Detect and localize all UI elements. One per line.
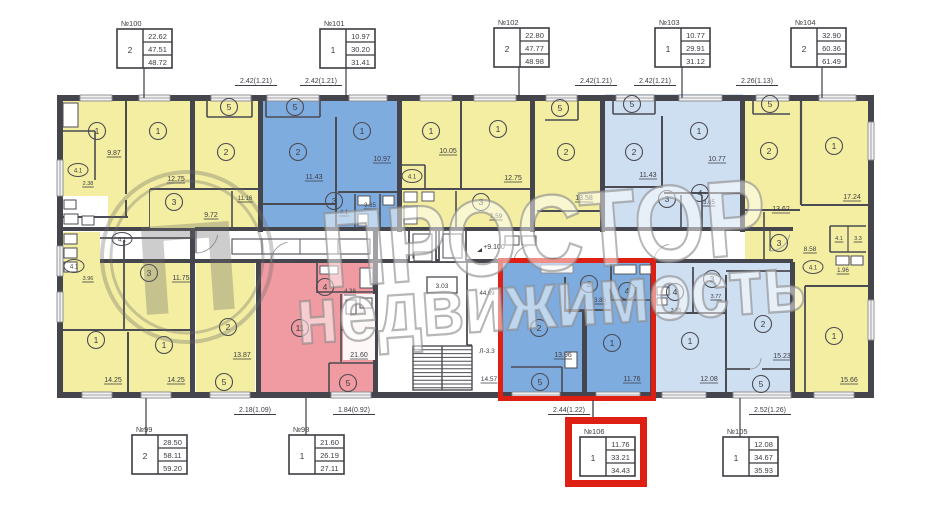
svg-text:1: 1 — [666, 44, 671, 54]
svg-text:№103: №103 — [659, 18, 680, 27]
svg-text:1: 1 — [331, 45, 336, 55]
svg-text:2.42(1.21): 2.42(1.21) — [240, 78, 272, 85]
svg-text:№102: №102 — [498, 18, 519, 27]
svg-text:1: 1 — [591, 453, 596, 463]
svg-text:12.08: 12.08 — [754, 440, 773, 449]
svg-text:59.20: 59.20 — [163, 464, 182, 473]
svg-text:2: 2 — [802, 44, 807, 54]
svg-text:21.60: 21.60 — [320, 438, 339, 447]
svg-text:15.66: 15.66 — [840, 377, 858, 384]
svg-text:5: 5 — [222, 377, 227, 387]
svg-text:2.18(1.09): 2.18(1.09) — [239, 407, 271, 414]
svg-text:60.36: 60.36 — [822, 44, 841, 53]
svg-text:1: 1 — [697, 126, 702, 136]
svg-text:1: 1 — [734, 453, 739, 463]
svg-text:3.3: 3.3 — [854, 236, 862, 242]
svg-text:2.26(1.13): 2.26(1.13) — [741, 78, 773, 85]
svg-text:15.23: 15.23 — [773, 353, 791, 360]
svg-text:1: 1 — [429, 126, 434, 136]
svg-text:1: 1 — [496, 124, 501, 134]
svg-text:1: 1 — [156, 126, 161, 136]
svg-text:5: 5 — [227, 102, 232, 112]
svg-text:35.93: 35.93 — [754, 466, 773, 475]
svg-text:5: 5 — [558, 103, 563, 113]
svg-text:58.11: 58.11 — [163, 451, 181, 460]
svg-text:61.49: 61.49 — [822, 57, 841, 66]
svg-text:3.96: 3.96 — [83, 276, 94, 282]
svg-text:10.97: 10.97 — [373, 156, 391, 163]
svg-text:4.1: 4.1 — [835, 236, 843, 242]
svg-text:2: 2 — [128, 45, 133, 55]
svg-text:№101: №101 — [324, 19, 345, 28]
svg-text:№106: №106 — [584, 427, 605, 436]
svg-text:26.19: 26.19 — [320, 451, 339, 460]
svg-text:14.25: 14.25 — [104, 377, 122, 384]
svg-text:1.96: 1.96 — [837, 268, 849, 274]
svg-text:9.87: 9.87 — [107, 150, 121, 157]
svg-text:2: 2 — [224, 147, 229, 157]
svg-text:22.80: 22.80 — [525, 31, 544, 40]
svg-text:11.76: 11.76 — [611, 440, 629, 449]
svg-text:2: 2 — [767, 146, 772, 156]
svg-text:1: 1 — [832, 331, 837, 341]
svg-text:14.25: 14.25 — [167, 377, 185, 384]
svg-text:29.91: 29.91 — [686, 44, 705, 53]
svg-text:10.77: 10.77 — [686, 31, 705, 40]
svg-text:31.12: 31.12 — [686, 57, 705, 66]
svg-text:2: 2 — [296, 147, 301, 157]
svg-text:11.43: 11.43 — [306, 174, 323, 181]
svg-text:27.11: 27.11 — [320, 464, 338, 473]
svg-text:2.52(1.26): 2.52(1.26) — [754, 407, 786, 414]
svg-text:1.84(0.92): 1.84(0.92) — [338, 407, 370, 414]
svg-text:2.44(1.22): 2.44(1.22) — [553, 407, 585, 414]
svg-text:31.41: 31.41 — [351, 58, 370, 67]
svg-text:№98: №98 — [293, 425, 309, 434]
svg-text:47.77: 47.77 — [525, 44, 544, 53]
svg-text:№105: №105 — [727, 427, 748, 436]
svg-text:10.97: 10.97 — [351, 32, 370, 41]
svg-text:П: П — [129, 193, 247, 343]
svg-text:1: 1 — [688, 336, 693, 346]
svg-text:4.1: 4.1 — [408, 174, 417, 180]
svg-text:47.51: 47.51 — [148, 45, 167, 54]
svg-text:33.21: 33.21 — [611, 453, 630, 462]
svg-text:48.72: 48.72 — [148, 58, 167, 67]
svg-text:1: 1 — [94, 335, 99, 345]
svg-text:48.98: 48.98 — [525, 57, 544, 66]
svg-text:1: 1 — [832, 141, 837, 151]
svg-text:4.1: 4.1 — [74, 168, 83, 174]
svg-text:5: 5 — [346, 378, 351, 388]
svg-text:10.05: 10.05 — [439, 148, 457, 155]
svg-text:2.42(1.21): 2.42(1.21) — [305, 78, 337, 85]
svg-text:№99: №99 — [136, 425, 152, 434]
svg-text:2.38: 2.38 — [83, 181, 94, 187]
svg-text:13.62: 13.62 — [772, 206, 790, 213]
svg-text:34.67: 34.67 — [754, 453, 773, 462]
svg-text:14.57: 14.57 — [481, 376, 498, 383]
svg-text:2.42(1.21): 2.42(1.21) — [639, 78, 671, 85]
svg-text:1: 1 — [95, 126, 100, 136]
svg-text:1: 1 — [300, 451, 305, 461]
svg-text:22.62: 22.62 — [148, 32, 167, 41]
svg-text:11.76: 11.76 — [624, 376, 641, 383]
svg-text:12.08: 12.08 — [700, 376, 718, 383]
svg-text:5: 5 — [293, 102, 298, 112]
svg-text:5: 5 — [768, 99, 773, 109]
svg-text:13.96: 13.96 — [554, 352, 572, 359]
svg-text:2: 2 — [143, 451, 148, 461]
svg-text:5: 5 — [538, 377, 543, 387]
svg-text:30.20: 30.20 — [351, 45, 370, 54]
svg-text:2.42(1.21): 2.42(1.21) — [580, 78, 612, 85]
svg-text:5: 5 — [759, 379, 764, 389]
svg-text:4.1: 4.1 — [118, 237, 127, 243]
svg-text:8.58: 8.58 — [804, 246, 817, 253]
svg-text:17.24: 17.24 — [843, 194, 861, 201]
svg-text:34.43: 34.43 — [611, 466, 630, 475]
svg-text:2: 2 — [564, 147, 569, 157]
svg-text:28.50: 28.50 — [163, 438, 182, 447]
svg-text:5: 5 — [630, 99, 635, 109]
svg-text:4.1: 4.1 — [809, 265, 818, 271]
svg-text:2: 2 — [505, 44, 510, 54]
svg-text:2: 2 — [632, 147, 637, 157]
svg-text:1: 1 — [360, 126, 365, 136]
svg-text:13.87: 13.87 — [233, 352, 251, 359]
svg-text:№104: №104 — [795, 18, 816, 27]
svg-text:Л-3.3: Л-3.3 — [479, 348, 495, 355]
svg-text:32.90: 32.90 — [822, 31, 841, 40]
svg-text:№100: №100 — [121, 19, 142, 28]
svg-text:4.1: 4.1 — [70, 264, 79, 270]
